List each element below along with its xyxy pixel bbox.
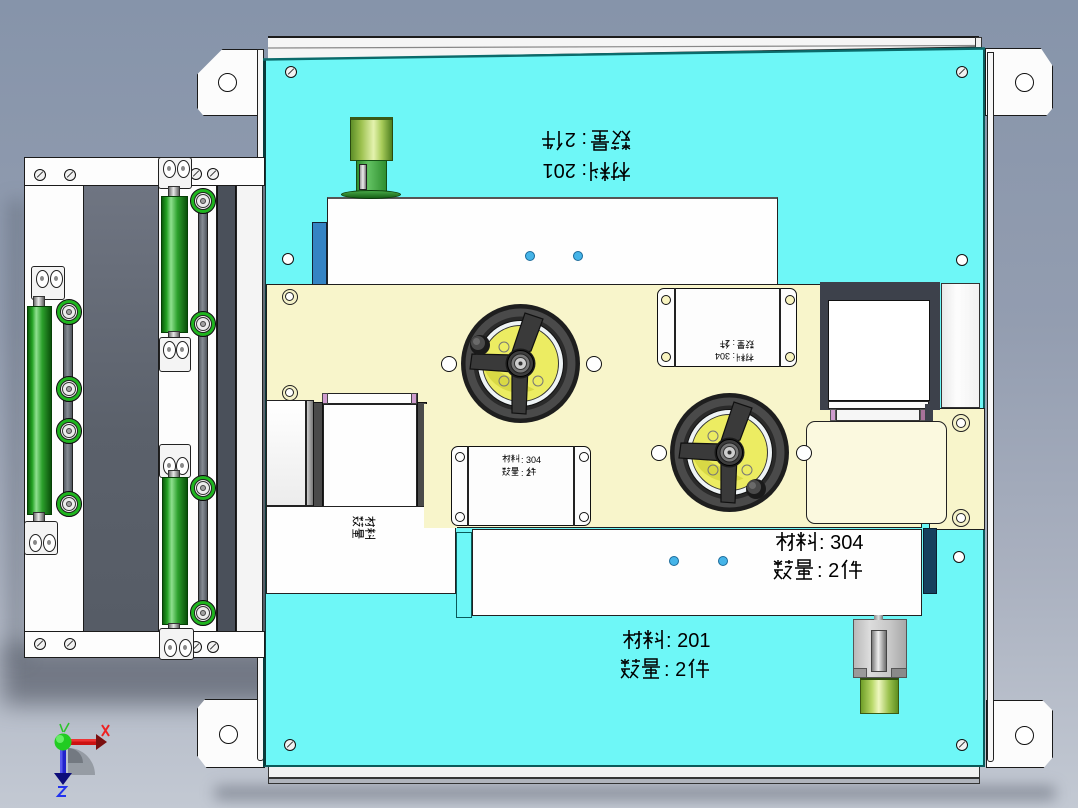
svg-text:: 201: : 201 [543,159,587,181]
svg-text:: 2: : 2 [565,128,587,150]
svg-text:: 304: : 304 [819,532,863,554]
svg-text:: 2: : 2 [725,338,735,348]
svg-text:: 2: : 2 [817,560,839,582]
svg-text:: 2: : 2 [521,468,531,478]
svg-text:: 304: : 304 [521,455,541,465]
svg-text:: 2: : 2 [664,659,686,681]
svg-text:: 201: : 201 [666,630,710,652]
svg-text:: 304: : 304 [715,351,735,361]
